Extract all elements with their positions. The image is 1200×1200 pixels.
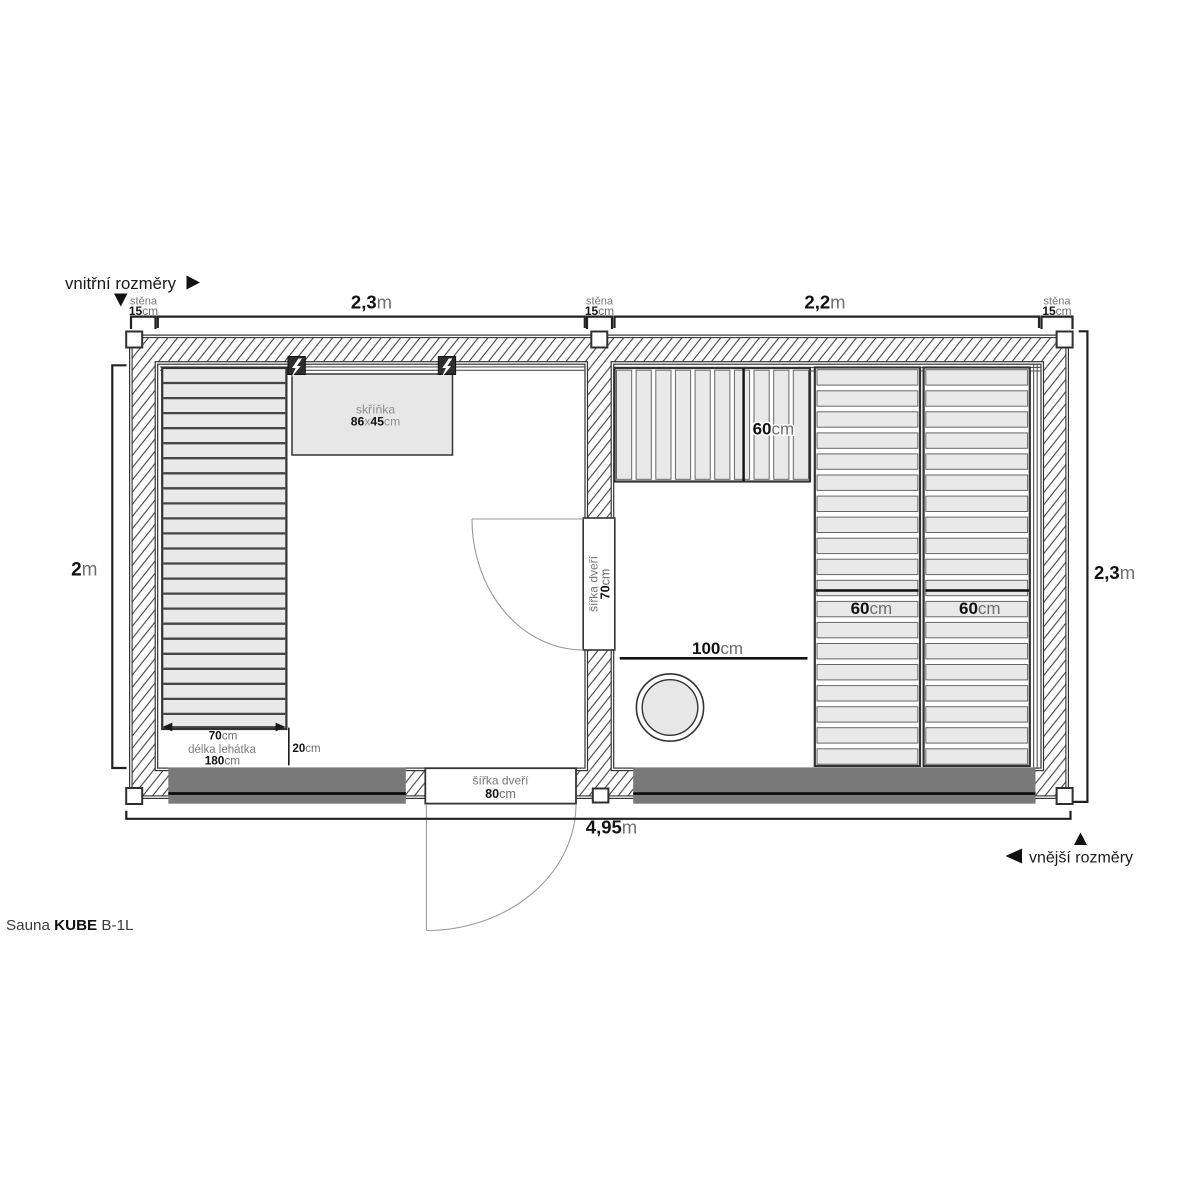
svg-text:2m: 2m [71,560,97,581]
svg-text:2,3m: 2,3m [1094,562,1135,583]
svg-text:šířka dveří: šířka dveří [472,774,529,788]
svg-text:15cm: 15cm [585,304,614,318]
svg-text:80cm: 80cm [485,787,516,801]
svg-text:70cm: 70cm [209,728,238,742]
svg-text:60cm: 60cm [753,420,795,439]
svg-text:15cm: 15cm [1042,304,1071,318]
svg-text:Sauna KUBE B-1L: Sauna KUBE B-1L [6,917,134,934]
svg-text:2,2m: 2,2m [804,292,845,313]
svg-text:70cm: 70cm [598,569,612,600]
svg-text:86x45cm: 86x45cm [351,414,400,428]
svg-text:vnější rozměry: vnější rozměry [1029,850,1133,867]
svg-text:vnitřní rozměry: vnitřní rozměry [65,274,177,293]
svg-text:2,3m: 2,3m [351,292,392,313]
svg-text:4,95m: 4,95m [586,817,637,838]
svg-text:60cm: 60cm [959,599,1001,618]
svg-text:60cm: 60cm [851,599,893,618]
svg-text:180cm: 180cm [205,754,241,768]
svg-text:20cm: 20cm [293,743,321,755]
svg-text:100cm: 100cm [692,639,743,658]
svg-text:15cm: 15cm [129,304,158,318]
